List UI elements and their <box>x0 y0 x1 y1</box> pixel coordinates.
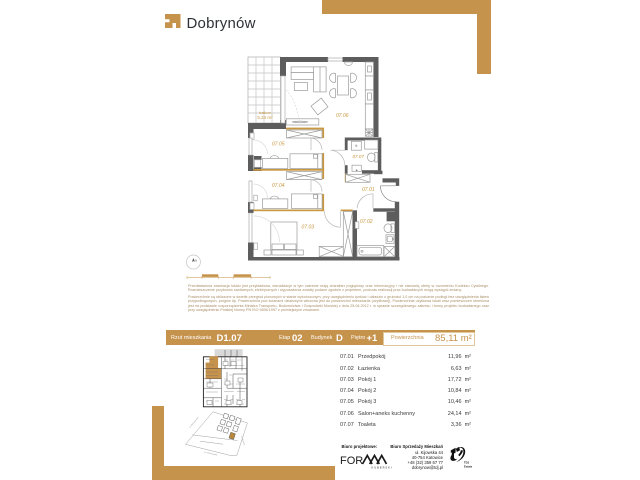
svg-text:07.01: 07.01 <box>362 187 375 193</box>
svg-text:07.06: 07.06 <box>336 113 349 119</box>
svg-text:Estate: Estate <box>464 464 473 468</box>
svg-text:N: N <box>195 259 197 263</box>
svg-text:07.03: 07.03 <box>302 225 315 231</box>
svg-text:5,24 m²: 5,24 m² <box>257 115 273 120</box>
svg-text:TDJ: TDJ <box>464 460 470 464</box>
svg-text:07.02: 07.02 <box>360 219 373 225</box>
svg-text:07.04: 07.04 <box>272 183 285 189</box>
svg-text:07.05: 07.05 <box>272 142 285 148</box>
svg-text:ul. Modrzewiowa: ul. Modrzewiowa <box>189 417 199 429</box>
svg-text:07.07: 07.07 <box>353 154 365 159</box>
svg-text:ul. Dobrynowska: ul. Dobrynowska <box>204 452 217 457</box>
svg-text:ul. Kijowska: ul. Kijowska <box>240 436 245 446</box>
svg-text:FOR: FOR <box>340 455 363 467</box>
